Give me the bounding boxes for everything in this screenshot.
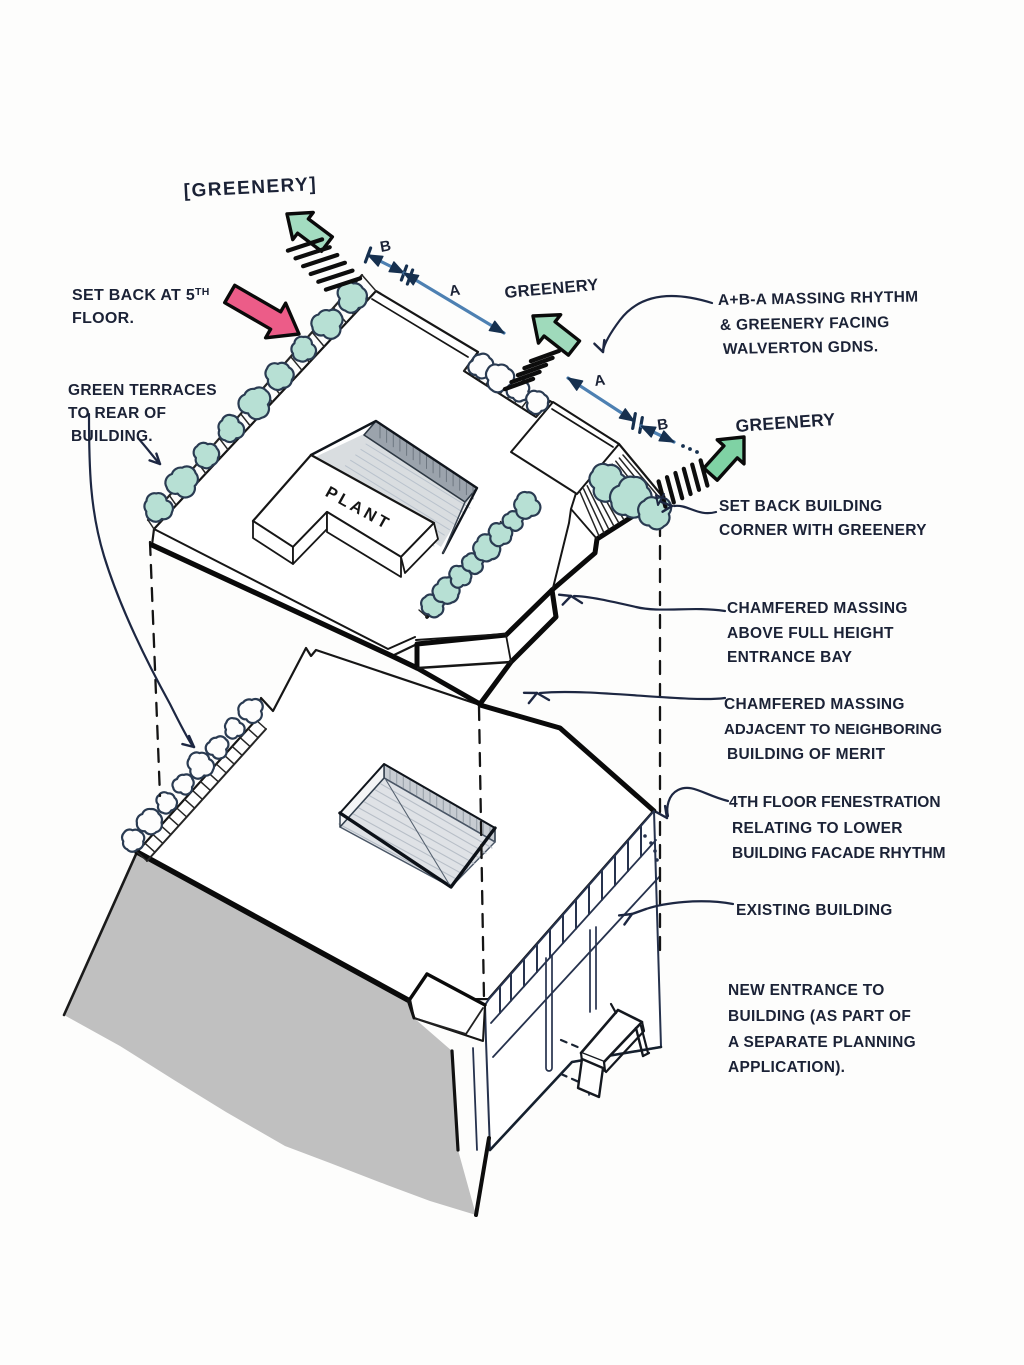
svg-text:A: A [593, 372, 606, 390]
svg-text:A SEPARATE PLANNING: A SEPARATE PLANNING [728, 1034, 916, 1051]
svg-text:BUILDING OF MERIT: BUILDING OF MERIT [727, 746, 886, 763]
svg-text:TO REAR OF: TO REAR OF [68, 405, 166, 422]
svg-text:SET BACK AT 5TH: SET BACK AT 5TH [72, 286, 210, 304]
svg-text:& GREENERY FACING: & GREENERY FACING [720, 314, 890, 334]
svg-text:CHAMFERED MASSING: CHAMFERED MASSING [727, 600, 908, 617]
svg-text:BUILDING.: BUILDING. [71, 428, 153, 445]
svg-text:NEW ENTRANCE TO: NEW ENTRANCE TO [728, 982, 885, 999]
svg-text:B: B [656, 416, 669, 434]
svg-text:CHAMFERED MASSING: CHAMFERED MASSING [724, 696, 905, 713]
svg-text:BUILDING (AS PART OF: BUILDING (AS PART OF [728, 1008, 911, 1025]
svg-text:GREEN TERRACES: GREEN TERRACES [68, 382, 217, 399]
svg-text:APPLICATION).: APPLICATION). [728, 1059, 845, 1076]
svg-text:A: A [448, 282, 461, 300]
svg-text:A+B-A MASSING RHYTHM: A+B-A MASSING RHYTHM [718, 289, 919, 309]
svg-text:ABOVE FULL HEIGHT: ABOVE FULL HEIGHT [727, 625, 894, 642]
svg-text:4TH FLOOR FENESTRATION: 4TH FLOOR FENESTRATION [729, 794, 941, 811]
svg-text:BUILDING FACADE RHYTHM: BUILDING FACADE RHYTHM [732, 845, 946, 862]
svg-text:SET BACK BUILDING: SET BACK BUILDING [719, 498, 883, 515]
svg-text:RELATING TO LOWER: RELATING TO LOWER [732, 820, 903, 837]
svg-text:EXISTING BUILDING: EXISTING BUILDING [736, 902, 893, 919]
svg-text:FLOOR.: FLOOR. [72, 310, 134, 327]
svg-text:ENTRANCE BAY: ENTRANCE BAY [727, 649, 853, 666]
svg-text:CORNER WITH GREENERY: CORNER WITH GREENERY [719, 522, 927, 539]
svg-text:ADJACENT TO NEIGHBORING: ADJACENT TO NEIGHBORING [724, 721, 942, 738]
svg-text:WALVERTON GDNS.: WALVERTON GDNS. [723, 338, 879, 358]
